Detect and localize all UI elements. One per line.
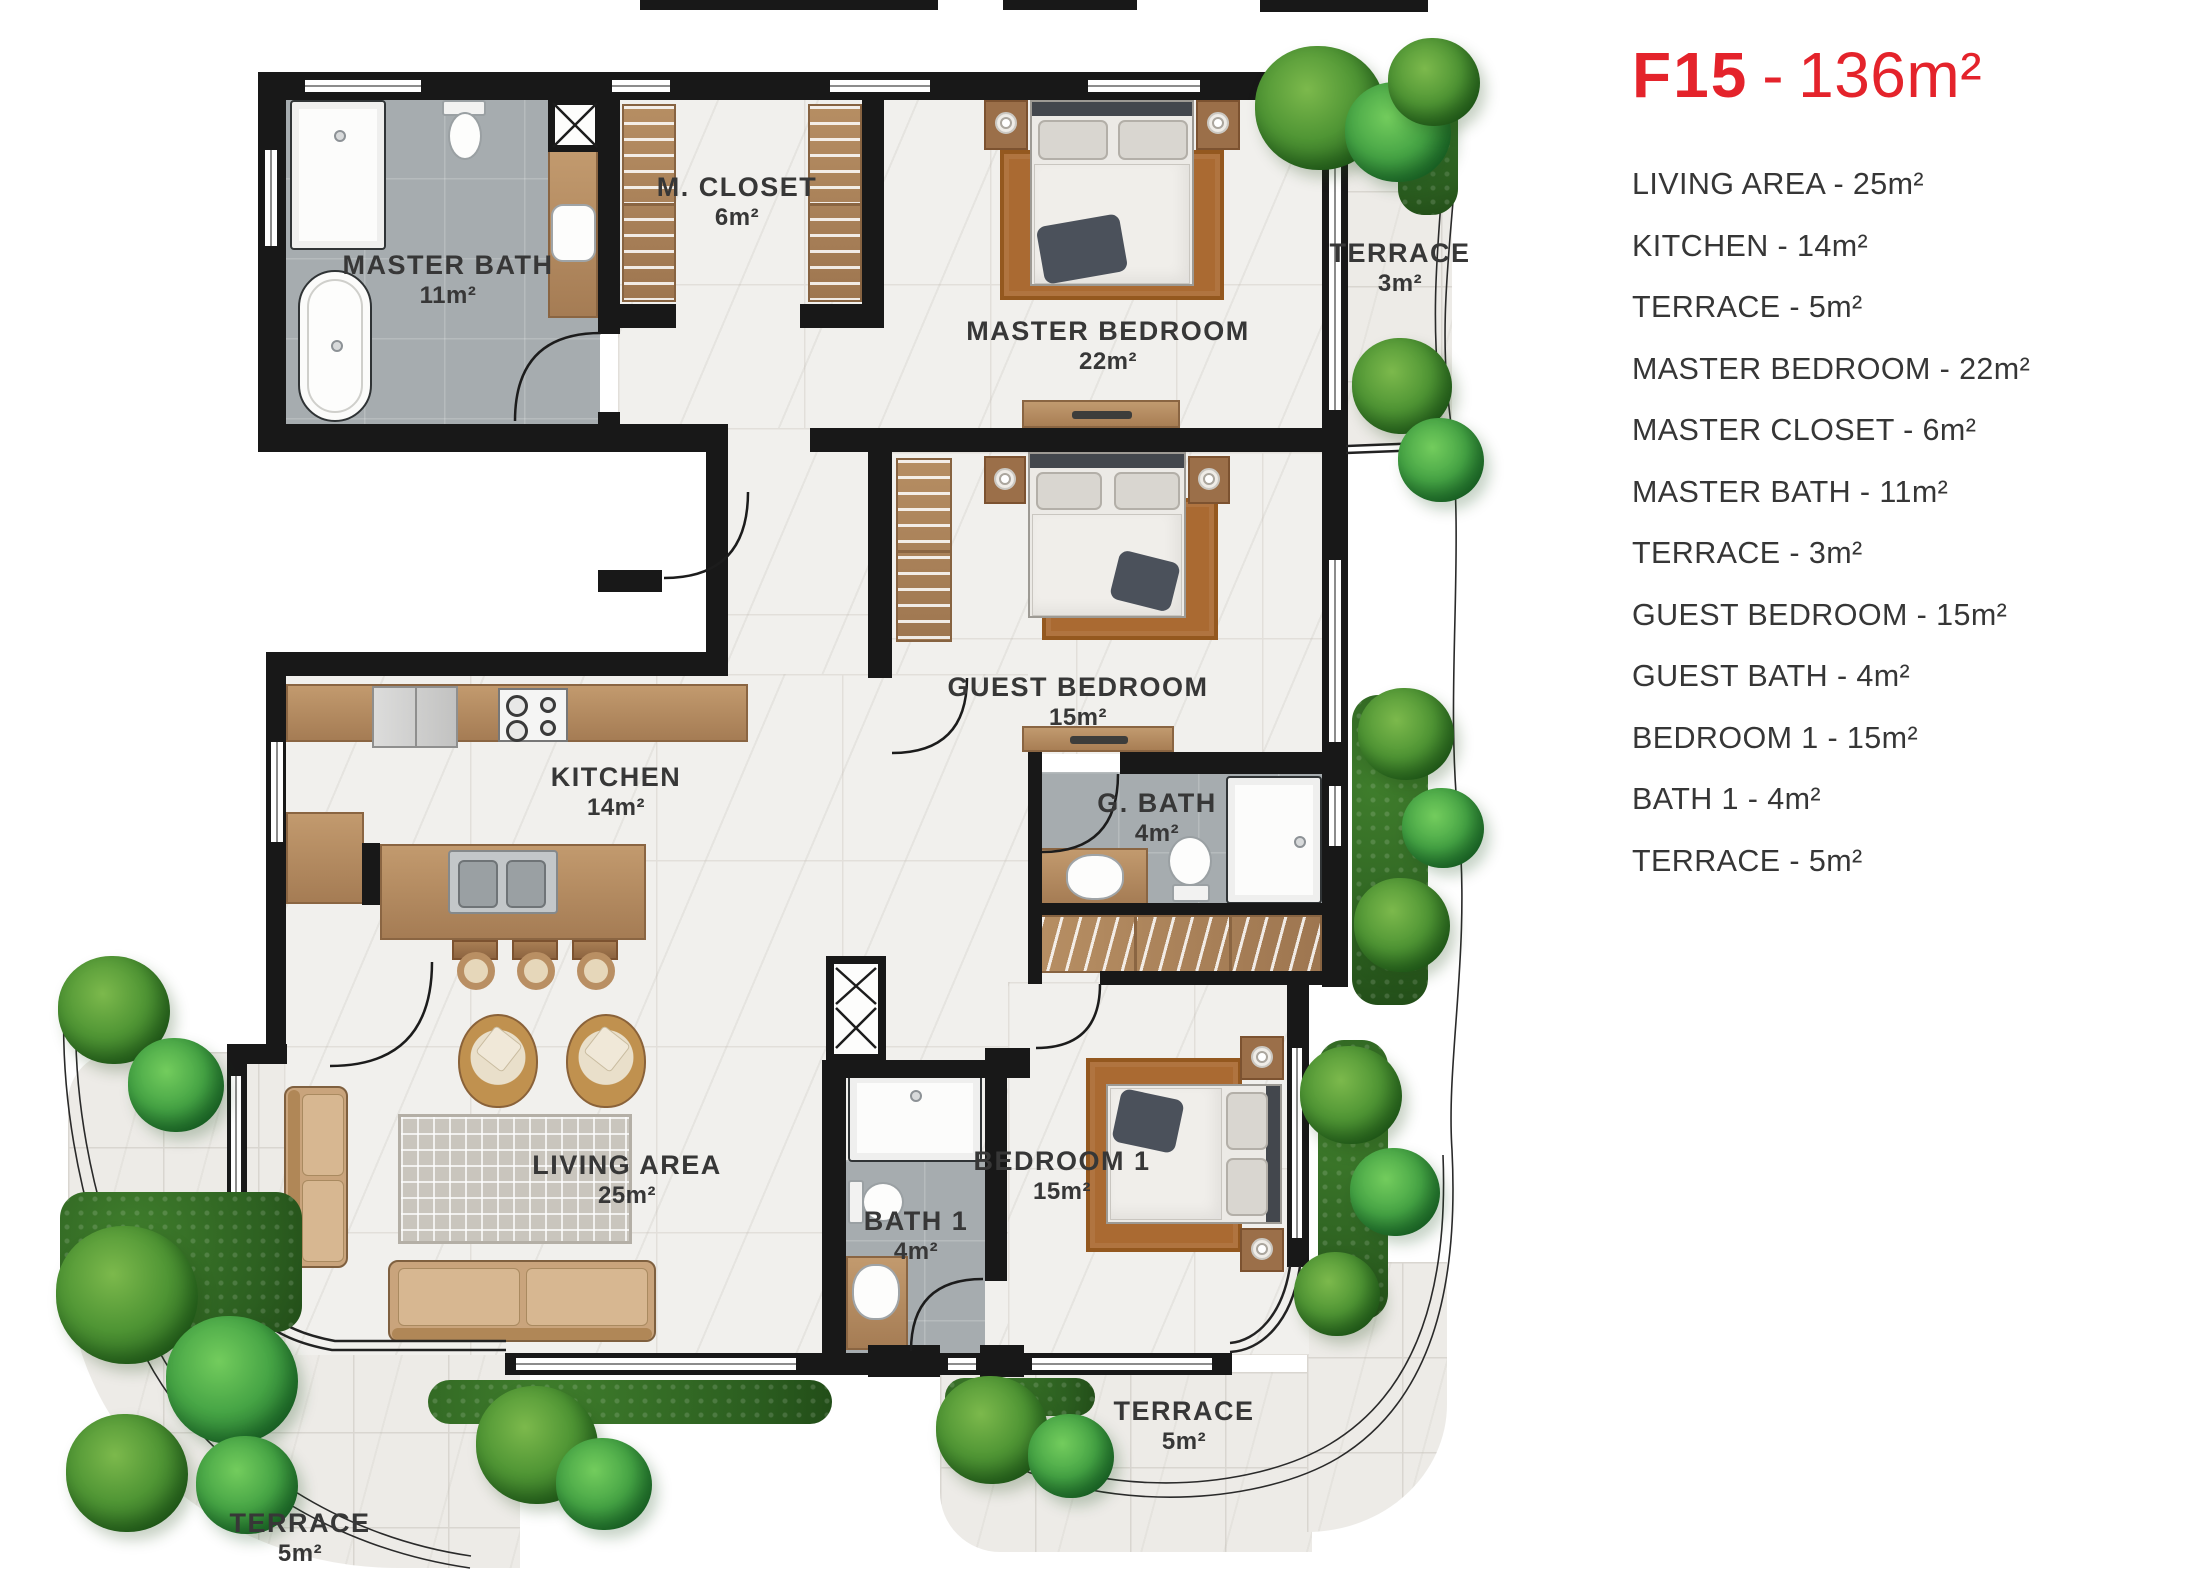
wardrobe-divider [810, 203, 860, 206]
room-area: 5m² [229, 1540, 370, 1568]
fridge-door-line [415, 688, 417, 746]
wall [810, 428, 1346, 452]
wall [258, 72, 286, 452]
sink-basin [506, 860, 546, 908]
pillow [1226, 1092, 1268, 1150]
plant [1350, 1148, 1440, 1236]
room-area: 14m² [551, 794, 682, 822]
unit-title: F15-136m² [1632, 38, 2192, 112]
pillow [1038, 120, 1108, 160]
wall [640, 0, 938, 10]
toilet-bowl [448, 112, 482, 160]
chair-pillow [583, 1025, 631, 1073]
window [1032, 1356, 1212, 1372]
room-name: BEDROOM 1 [973, 1146, 1150, 1178]
unit-code: F15 [1632, 39, 1748, 111]
stove [498, 688, 568, 742]
plant [1354, 878, 1450, 972]
sofa-cushion [398, 1268, 520, 1326]
sofa-cushion [526, 1268, 648, 1326]
room-label-guest-bedroom: GUEST BEDROOM 15m² [947, 672, 1208, 732]
armchair [458, 1014, 538, 1108]
bathroom-sink [1066, 854, 1124, 900]
legend-item: MASTER CLOSET - 6m² [1632, 400, 2192, 462]
hall-corridor-floor [726, 428, 868, 676]
wall [822, 1060, 997, 1078]
wall [598, 72, 620, 334]
toilet-tank [1172, 884, 1210, 902]
pillow [1114, 472, 1180, 510]
room-name: KITCHEN [551, 762, 682, 794]
legend-item: GUEST BEDROOM - 15m² [1632, 585, 2192, 647]
room-name: M. CLOSET [657, 172, 818, 204]
title-separator: - [1762, 39, 1784, 111]
bar-stool-seat [457, 952, 495, 990]
burner [540, 720, 556, 736]
lamp [994, 468, 1016, 490]
legend-panel: F15-136m² LIVING AREA - 25m² KITCHEN - 1… [1632, 38, 2192, 892]
plant [66, 1414, 188, 1532]
room-area: 3m² [1329, 270, 1470, 298]
window [1327, 560, 1343, 742]
wall [266, 652, 286, 1064]
room-area: 15m² [973, 1178, 1150, 1206]
legend-item: BEDROOM 1 - 15m² [1632, 708, 2192, 770]
room-area: 4m² [1097, 820, 1217, 848]
sofa [388, 1260, 656, 1342]
bar-stool-seat [577, 952, 615, 990]
wall [1260, 0, 1428, 12]
wall [598, 412, 620, 452]
drain [910, 1090, 922, 1102]
pillow [1226, 1158, 1268, 1216]
wall [1028, 752, 1042, 984]
wardrobe-divider [898, 550, 950, 553]
window [269, 742, 285, 842]
headboard [1030, 454, 1184, 468]
room-name: TERRACE [229, 1508, 370, 1540]
guest-bed [1028, 452, 1186, 618]
plant [128, 1038, 224, 1132]
plant [1028, 1414, 1114, 1498]
shower-tray [1226, 776, 1322, 904]
lamp [1251, 1238, 1273, 1260]
wall [266, 652, 728, 676]
plant [1398, 418, 1484, 502]
sofa-cushion [302, 1180, 344, 1262]
wall [1100, 971, 1324, 985]
bar-stool-seat [517, 952, 555, 990]
plant [166, 1316, 298, 1444]
plant [1294, 1252, 1380, 1336]
pillow [1118, 120, 1188, 160]
sofa-cushion [302, 1094, 344, 1176]
unit-total-area: 136m² [1798, 39, 1982, 111]
wall [868, 1345, 940, 1377]
window [263, 150, 279, 246]
room-area: 22m² [966, 348, 1250, 376]
dresser-tray [1070, 736, 1128, 744]
fridge [372, 686, 458, 748]
window [1327, 786, 1343, 846]
wall [258, 424, 728, 452]
shower-tray [290, 100, 386, 250]
room-area: 11m² [343, 282, 554, 310]
room-name: GUEST BEDROOM [947, 672, 1208, 704]
room-label-terrace-top: TERRACE 3m² [1329, 238, 1470, 298]
room-area: 5m² [1113, 1428, 1254, 1456]
pillow [1036, 472, 1102, 510]
room-name: G. BATH [1097, 788, 1217, 820]
dresser-tray [1072, 411, 1132, 419]
island-sink [448, 850, 558, 914]
window [612, 78, 670, 94]
room-area-list: LIVING AREA - 25m² KITCHEN - 14m² TERRAC… [1632, 154, 2192, 892]
wall [868, 452, 892, 678]
legend-item: TERRACE - 5m² [1632, 831, 2192, 893]
burner [506, 720, 528, 742]
room-label-bedroom-1: BEDROOM 1 15m² [973, 1146, 1150, 1206]
wall [1003, 0, 1137, 10]
window [830, 78, 930, 94]
burner [506, 695, 528, 717]
wardrobe-divider [1229, 917, 1232, 971]
room-name: LIVING AREA [532, 1150, 722, 1182]
drain [1294, 836, 1306, 848]
wall [980, 1345, 1024, 1377]
legend-item: TERRACE - 5m² [1632, 277, 2192, 339]
plant [1388, 38, 1480, 126]
legend-item: MASTER BEDROOM - 22m² [1632, 339, 2192, 401]
master-bed [1030, 100, 1194, 286]
kitchen-counter-l [286, 812, 364, 904]
wall [985, 1048, 1030, 1078]
floor-plan-page: MASTER BATH 11m² M. CLOSET 6m² MASTER BE… [0, 0, 2200, 1575]
plant [1358, 688, 1454, 780]
window [305, 78, 421, 94]
lamp [1207, 112, 1229, 134]
room-label-m-closet: M. CLOSET 6m² [657, 172, 818, 232]
wall [598, 304, 676, 328]
shower-tray [848, 1074, 982, 1162]
lamp [995, 112, 1017, 134]
wall [862, 72, 884, 326]
room-area: 6m² [657, 204, 818, 232]
room-label-kitchen: KITCHEN 14m² [551, 762, 682, 822]
window [948, 1356, 976, 1372]
room-name: TERRACE [1329, 238, 1470, 270]
room-label-bath-1: BATH 1 4m² [864, 1206, 969, 1266]
shaft [548, 98, 602, 152]
wall [822, 1060, 846, 1355]
wall [706, 424, 728, 676]
plant [1402, 788, 1484, 868]
chair-pillow [475, 1025, 523, 1073]
burner [540, 697, 556, 713]
room-label-g-bath: G. BATH 4m² [1097, 788, 1217, 848]
room-area: 25m² [532, 1182, 722, 1210]
room-name: BATH 1 [864, 1206, 969, 1238]
legend-item: GUEST BATH - 4m² [1632, 646, 2192, 708]
drain [331, 340, 343, 352]
legend-item: TERRACE - 3m² [1632, 523, 2192, 585]
lamp [1198, 468, 1220, 490]
wall [362, 843, 380, 905]
room-name: MASTER BATH [343, 250, 554, 282]
room-label-terrace-bottom-left: TERRACE 5m² [229, 1508, 370, 1568]
dresser [1022, 400, 1180, 428]
wardrobe [896, 458, 952, 642]
bathroom-sink [551, 204, 596, 262]
legend-item: BATH 1 - 4m² [1632, 769, 2192, 831]
room-area: 15m² [947, 704, 1208, 732]
wall [1120, 752, 1346, 774]
legend-item: LIVING AREA - 25m² [1632, 154, 2192, 216]
drain [334, 130, 346, 142]
bathroom-sink [852, 1264, 900, 1320]
armchair [566, 1014, 646, 1108]
hall-closet [1040, 915, 1322, 973]
legend-item: MASTER BATH - 11m² [1632, 462, 2192, 524]
headboard [1266, 1086, 1280, 1222]
headboard [1032, 102, 1192, 116]
room-name: MASTER BEDROOM [966, 316, 1250, 348]
shaft [826, 956, 886, 1062]
plant [1300, 1046, 1402, 1144]
wardrobe-divider [1134, 917, 1137, 971]
lamp [1251, 1046, 1273, 1068]
room-label-master-bath: MASTER BATH 11m² [343, 250, 554, 310]
room-name: TERRACE [1113, 1396, 1254, 1428]
room-label-living-area: LIVING AREA 25m² [532, 1150, 722, 1210]
legend-item: KITCHEN - 14m² [1632, 216, 2192, 278]
window [1088, 78, 1200, 94]
room-area: 4m² [864, 1238, 969, 1266]
room-label-master-bedroom: MASTER BEDROOM 22m² [966, 316, 1250, 376]
room-label-terrace-bottom-right: TERRACE 5m² [1113, 1396, 1254, 1456]
sofa-back [392, 1328, 652, 1340]
plant [556, 1438, 652, 1530]
sink-basin [458, 860, 498, 908]
wall [1028, 903, 1324, 915]
wall [598, 570, 662, 592]
window [516, 1356, 796, 1372]
